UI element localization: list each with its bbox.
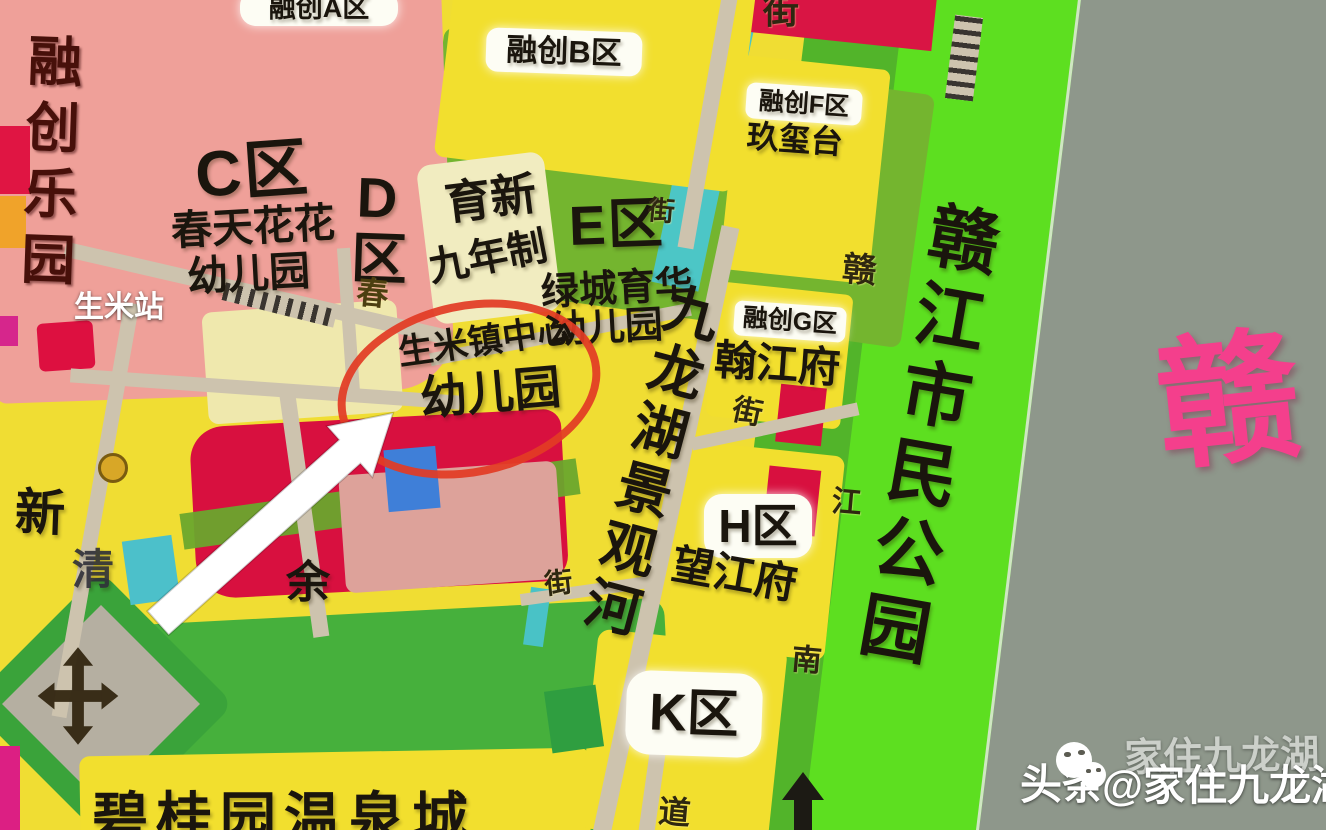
river-name-gan: 赣	[1150, 320, 1307, 483]
region-label-yuxin: 育新	[442, 169, 539, 228]
road-label-jie-right: 街	[729, 394, 765, 431]
road-label-jie-top: 街	[763, 0, 799, 30]
compass-arrows-icon	[36, 636, 120, 756]
road-label-jiang: 江	[830, 486, 863, 520]
region-label-rongchuang-f: 融创F区	[758, 88, 850, 120]
region-label-jiuxitai: 玖玺台	[746, 120, 844, 160]
region-label-hanjiangfu: 翰江府	[713, 338, 842, 391]
road-label-jie-bottom: 街	[543, 567, 574, 599]
place-label-xin: 新	[14, 486, 66, 540]
region-label-k-zone: K区	[648, 685, 739, 743]
region-label-rongchuang-b: 融创B区	[506, 34, 622, 71]
magenta-corner	[0, 746, 20, 830]
region-label-rongchuang-g: 融创G区	[742, 305, 838, 338]
highlight-label-line2: 幼儿园	[418, 362, 563, 423]
planning-map: 融创A区 融创B区 融创F区 融创G区 H区 K区 融创乐园 玖玺台 C区 春天…	[0, 0, 1326, 830]
region-label-biguiyuan: 碧桂园温泉城	[92, 790, 476, 830]
watermark-handle: @家住九龙湖	[1102, 764, 1326, 808]
station-label: 生米站	[74, 292, 164, 324]
place-label-qing: 清	[72, 548, 114, 592]
label-box-rongchuang-b: 融创B区	[485, 27, 642, 76]
pointer-arrow	[138, 398, 408, 643]
region-label-rongchuang-leyuan: 融创乐园	[11, 32, 78, 344]
region-label-rongchuang-a: 融创A区	[269, 0, 370, 22]
region-label-chuntianhuahua: 春天花花	[170, 201, 336, 253]
road-label-jie-mid: 街	[647, 196, 676, 227]
up-arrow-icon	[782, 772, 824, 830]
road-label-chun: 春	[355, 276, 390, 312]
road-label-nan: 南	[790, 644, 823, 678]
landmark-dot	[98, 453, 128, 483]
road-label-dao: 道	[657, 795, 692, 830]
label-box-k-zone: K区	[625, 670, 764, 759]
region-label-h-zone: H区	[718, 502, 797, 550]
region-label-c-zone: C区	[193, 134, 312, 209]
label-box-rongchuang-a: 融创A区	[240, 0, 398, 26]
road-label-gan: 赣	[841, 252, 878, 291]
region-label-chuntian-kindergarten: 幼儿园	[186, 250, 311, 299]
